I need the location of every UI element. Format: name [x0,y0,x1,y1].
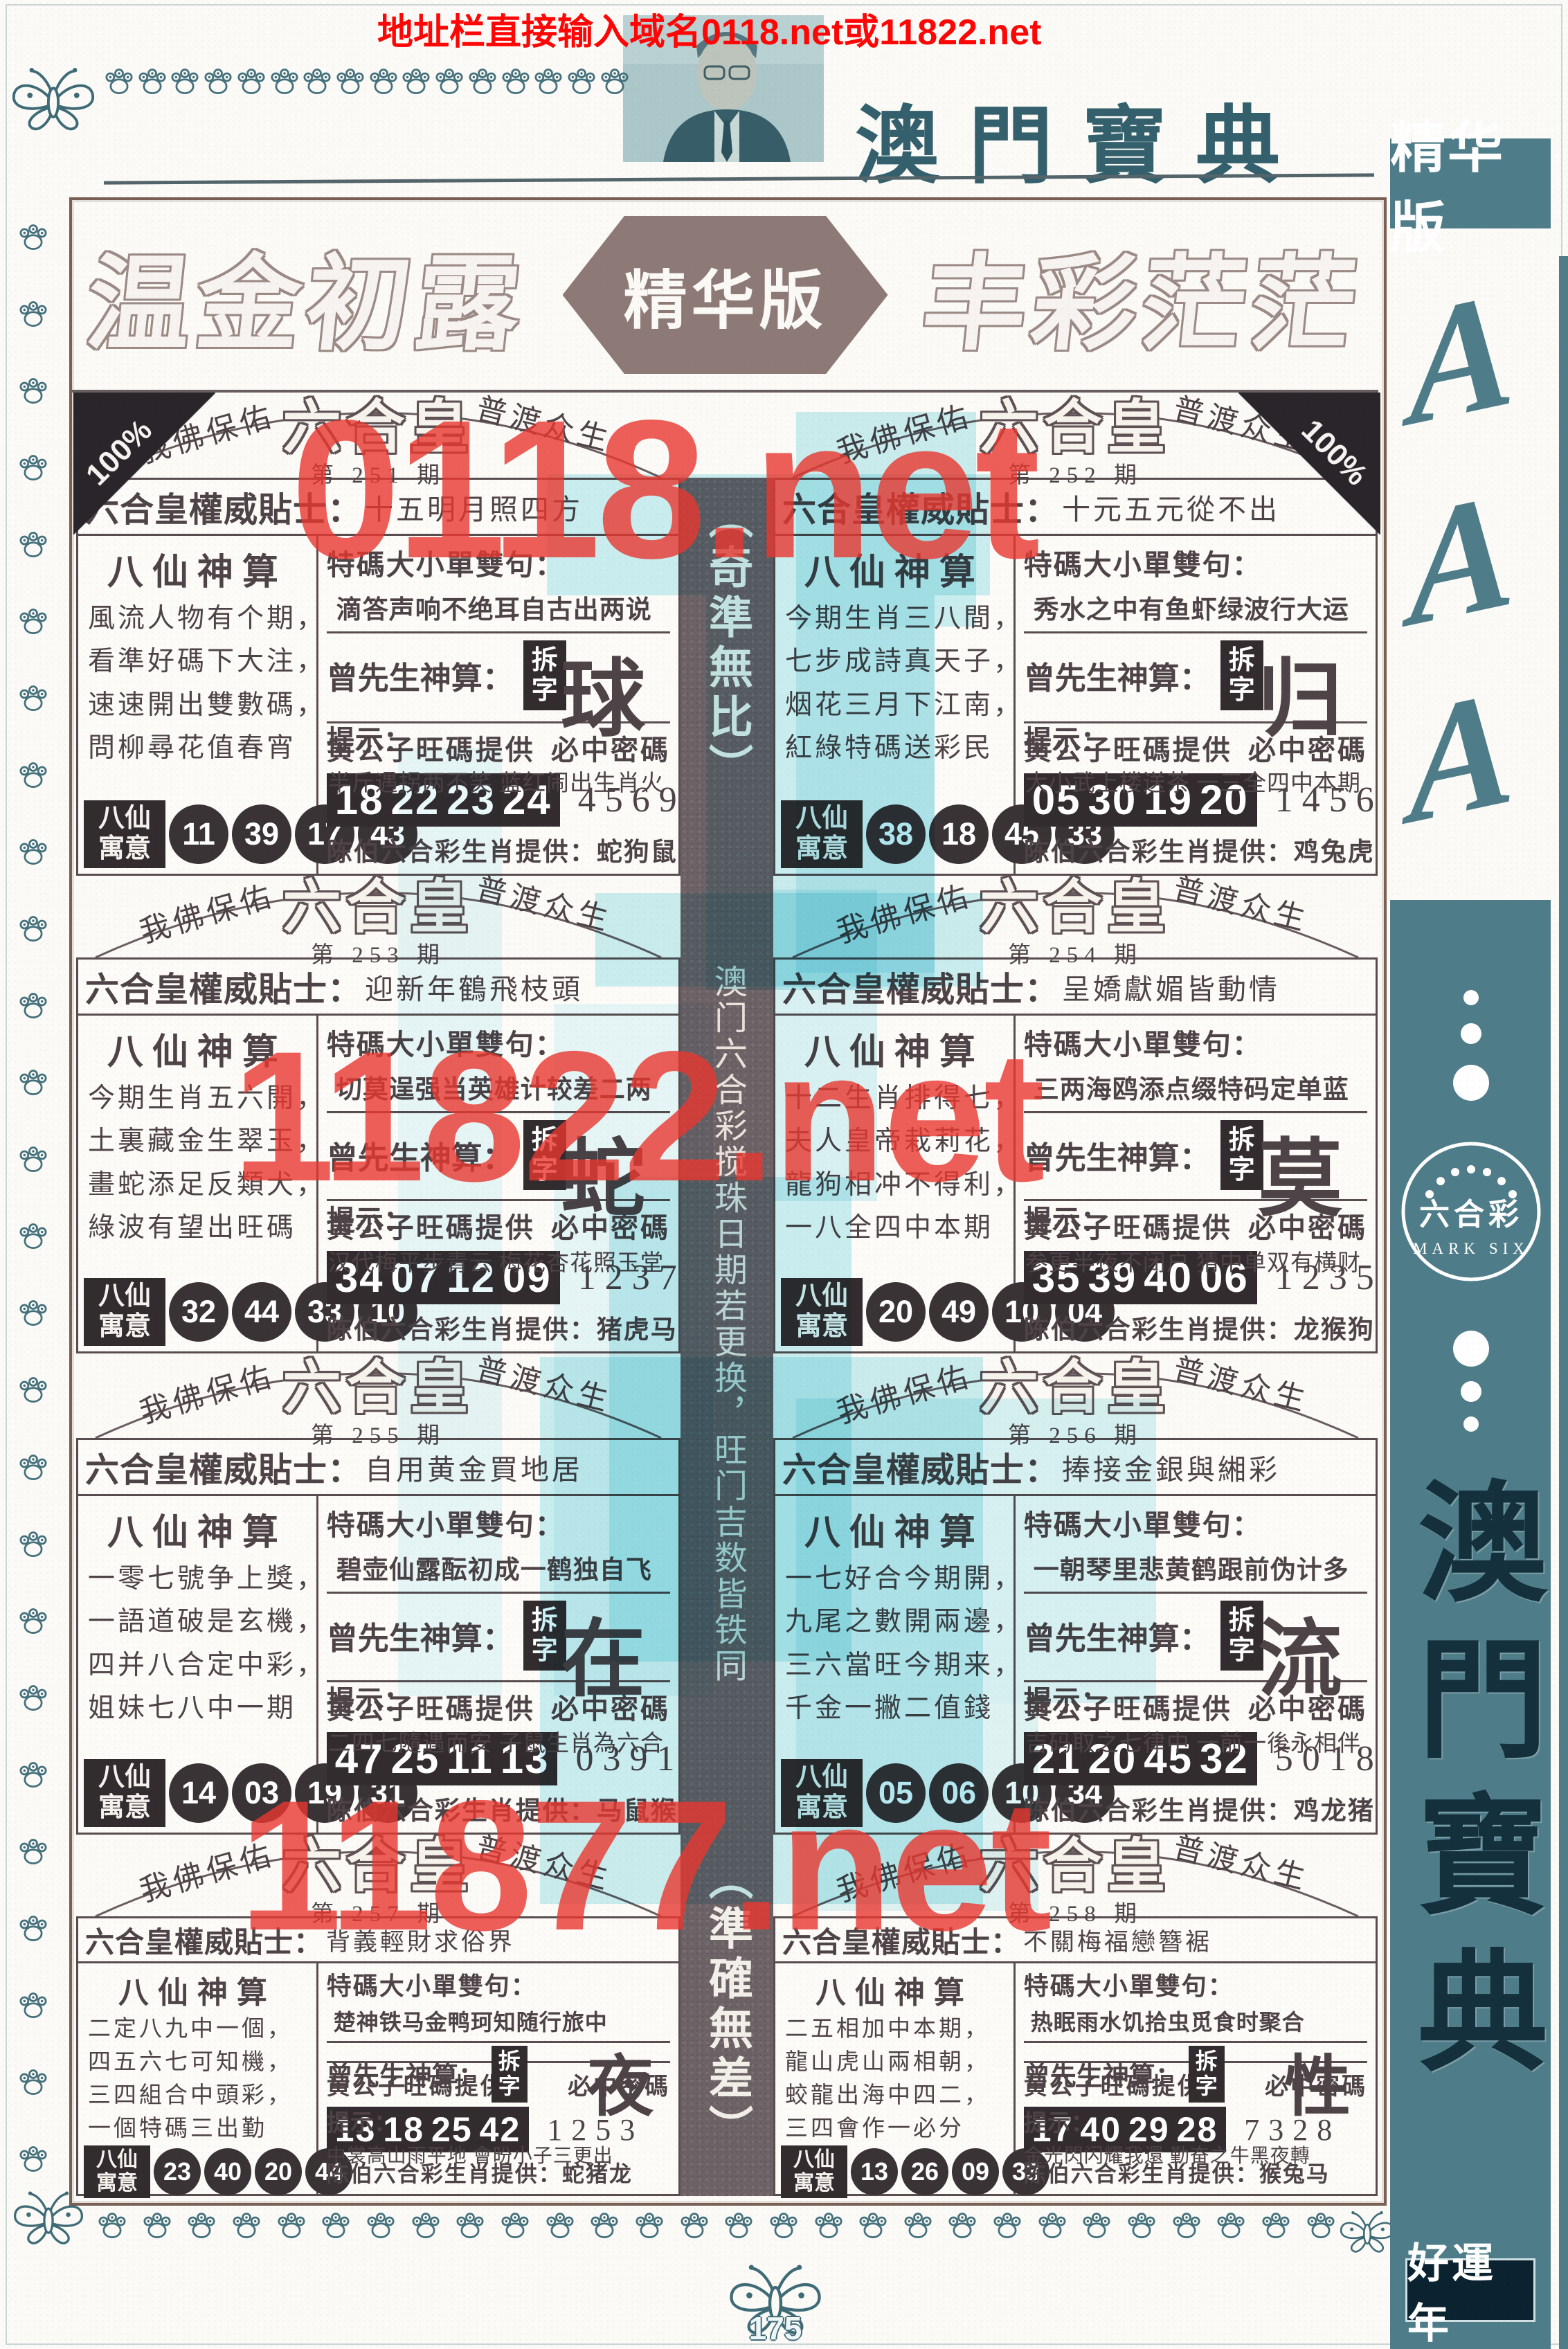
panel-logo: 六合皇 [282,1360,474,1418]
special-code-label: 特碼大小單雙句： [327,1502,670,1543]
issue-number: 第 253 期 [311,936,446,969]
zeng-label: 曾先生神算： [1024,2055,1182,2093]
special-code-label: 特碼大小單雙句： [1024,1021,1367,1063]
paw-print-icon [236,66,267,96]
zeng-label: 曾先生神算： [327,1613,514,1658]
page-title: 澳門寶典 [855,78,1309,200]
panel-logo: 六合皇 [282,399,474,458]
mark-six-cn: 六合彩 [1419,1198,1523,1232]
paw-print-icon [401,66,431,96]
special-code-text: 热眠雨水饥拾虫觅食时聚合 [1031,2005,1367,2037]
issue-value: 254 [1049,943,1102,968]
issue-value: 251 [352,463,405,488]
prediction-panel: 我佛保佑 普渡众生 六合皇 第 253 期 六合皇權威貼士： 迎新年鶴飛枝頭 八… [76,878,681,1353]
panel-table: 六合皇權威貼士： 自用黄金買地居 八仙神算 一零七號争上獎， 一語道破是玄機， … [76,1438,681,1835]
character-split-badge: 拆字 [523,1120,566,1190]
immortals-title: 八仙神算 [84,1023,311,1074]
immortals-meaning-label: 八仙寓意 [84,800,165,868]
mark-six-logo: 六合彩 MARK SIX [1398,1139,1544,1284]
paw-print-icon [18,452,48,483]
paw-print-icon [18,683,48,713]
hint-text: 参更半夜不闭户 猜中单双有横财 [1025,1244,1367,1277]
panel-table: 六合皇權威貼士： 十五明月照四方 八仙神算 風流人物有个期， 看準好碼下大注， … [76,478,681,876]
dot-ornament [1461,1023,1481,1044]
zodiac-values: 龙猴狗 [1294,1316,1375,1344]
special-code-label: 特碼大小單雙句： [327,1966,670,2002]
issue-value: 252 [1049,463,1102,488]
tip-text: 捧接金銀與緗彩 [1062,1446,1280,1488]
immortals-poem: 今期生肖五六開， 土裏藏金生翠玉， 畫蛇添足反類犬， 綠波有望出旺碼 [84,1077,311,1278]
split-character: 莫 [1258,1138,1342,1223]
paw-print-icon [903,2210,933,2240]
paw-print-icon [170,66,200,96]
special-code-section: 特碼大小單雙句： 楚神铁马金鸭珂知随行旅中 [327,1965,670,2043]
domain-banner-text: 地址栏直接输入域名0118.net或11822.net [377,3,1041,55]
paw-print-icon [18,836,48,867]
zodiac-row: 陈伯六合彩生肖提供：蛇狗鼠 [327,831,670,871]
issue-suffix: 期 [1114,1423,1143,1448]
zeng-section: 曾先生神算： 拆字 在 提示： 二四七隨遇而安 子鼠生肖為六合 [327,1594,670,1682]
paw-print-border-bottom [97,2210,1336,2240]
paw-print-icon [566,66,597,96]
immortals-title: 八仙神算 [84,1968,311,2012]
hint-text: 二四七隨遇而安 子鼠生肖為六合 [328,1725,670,1758]
meaning-number-ball: 05 [866,1763,926,1823]
issue-number: 第 251 期 [311,456,446,489]
immortals-column: 八仙神算 十二生肖排得七， 夫人皇帝栽莉花， 龍狗相冲不得利， 一八全四中本期 … [775,1016,1016,1351]
special-code-label: 特碼大小單雙句： [1024,1966,1367,2002]
immortals-poem: 一零七號争上獎， 一語道破是玄機， 四并八合定中彩， 姐妹七八中一期 [84,1558,311,1759]
mark-six-en: MARK SIX [1413,1240,1529,1257]
hundred-percent-badge: 100% [1238,393,1380,534]
special-code-label: 特碼大小單雙句： [1024,1502,1367,1543]
issue-number: 第 256 期 [1008,1416,1143,1450]
poem-line: 紅綠特碼送彩民 [785,727,1008,770]
split-character: 性 [1284,2054,1351,2121]
issue-prefix: 第 [1008,1902,1037,1927]
immortals-column: 八仙神算 今期生肖五六開， 土裏藏金生翠玉， 畫蛇添足反類犬， 綠波有望出旺碼 … [78,1016,318,1351]
panel-logo: 六合皇 [980,879,1171,937]
paw-print-icon [18,222,48,252]
paw-print-icon [276,2210,307,2240]
poem-line: 風流人物有个期， [88,597,311,640]
paw-print-icon [368,66,399,96]
zeng-label: 曾先生神算： [1024,1133,1211,1178]
details-column: 特碼大小單雙句： 一朝琴里悲黄鹤跟前伪计多 曾先生神算： 拆字 流 提示： 吉码… [1016,1496,1376,1833]
hint-text: 汉代梅平步青云 梅花杏花照玉堂 [328,1244,670,1277]
zeng-section: 曾先生神算： 拆字 流 提示： 吉码取之七律中 一前一後永相伴 [1024,1594,1367,1682]
zeng-label: 曾先生神算： [327,1133,514,1178]
zodiac-label: 陈伯六合彩生肖提供： [327,838,597,867]
banner-right-calligraphy: 丰彩茫茫 [917,220,1370,370]
split-character: 蛇 [561,1138,645,1223]
hundred-percent-badge: 100% [73,393,215,534]
issue-prefix: 第 [311,463,340,488]
poem-line: 速速開出雙數碼， [88,684,311,727]
tip-label: 六合皇權威貼士： [85,1919,323,1961]
paw-print-icon [679,2210,710,2240]
split-character: 夜 [587,2054,654,2121]
paw-print-icon [366,2210,396,2240]
paw-print-icon [858,2210,888,2240]
sidebar-edition-badge: 精华版 [1390,138,1551,228]
paw-print-icon [18,606,48,636]
zeng-section: 曾先生神算： 拆字 球 提示： 半斤遇拐两不笑 蓝红闹出生肖火 [327,633,670,723]
issue-suffix: 期 [1114,463,1143,488]
zodiac-label: 陈伯六合彩生肖提供： [327,1797,597,1826]
tip-label: 六合皇權威貼士： [85,1443,362,1492]
hundred-percent-label: 100% [80,413,159,493]
issue-value: 258 [1049,1902,1102,1927]
panel-arch-header: 我佛保佑 普渡众生 六合皇 第 257 期 [76,1837,681,1916]
issue-value: 255 [352,1423,405,1448]
poem-line: 龍狗相冲不得利， [785,1164,1008,1207]
meaning-number-ball: 44 [232,1282,291,1342]
paw-print-border-top [104,66,630,96]
zodiac-values: 猪虎马 [597,1316,678,1344]
paw-print-border-left [18,222,48,2174]
paw-print-icon [97,2210,127,2240]
paw-print-icon [1171,2210,1202,2240]
issue-value: 253 [352,943,405,968]
zodiac-label: 陈伯六合彩生肖提供： [1024,1797,1294,1826]
poem-line: 九尾之數開兩邊， [785,1601,1008,1644]
poem-line: 今期生肖五六開， [88,1077,311,1120]
immortals-meaning-row: 八仙寓意 23 40 20 44 [84,2145,311,2198]
split-character: 球 [561,658,645,743]
paw-print-icon [18,2067,48,2097]
immortals-meaning-row: 八仙寓意 11 39 17 43 [84,800,311,868]
tip-label: 六合皇權威貼士： [782,483,1059,532]
immortals-meaning-label: 八仙寓意 [781,1759,863,1827]
meaning-number-ball: 06 [929,1763,989,1823]
paw-print-icon [18,759,48,790]
hint-text: 半斤遇拐两不笑 蓝红闹出生肖火 [328,764,670,798]
issue-prefix: 第 [1008,943,1037,968]
poem-line: 一零七號争上獎， [88,1558,311,1601]
paw-print-icon [302,66,332,96]
poem-line: 問柳尋花值春宵 [88,727,311,770]
paw-print-icon [1126,2210,1157,2240]
character-split-badge: 拆字 [1189,2046,1225,2103]
poem-line: 三六當旺今期来， [785,1644,1008,1687]
scanned-lottery-tipsheet-page: 地址栏直接输入域名0118.net或11822.net 澳門寶典 175 温金初… [0,0,1568,2349]
paw-print-icon [18,1913,48,1943]
special-code-section: 特碼大小單雙句： 一朝琴里悲黄鹤跟前伪计多 [1024,1497,1367,1594]
paw-print-icon [18,298,48,329]
panel-table: 六合皇權威貼士： 背義輕財求俗界 八仙神算 二定八九中一個， 四五六七可知機， … [76,1916,681,2196]
immortals-column: 八仙神算 風流人物有个期， 看準好碼下大注， 速速開出雙數碼， 問柳尋花值春宵 … [78,536,318,874]
issue-suffix: 期 [417,1423,446,1448]
meaning-number-ball: 32 [169,1282,228,1342]
zodiac-label: 陈伯六合彩生肖提供： [1024,1316,1294,1344]
strip-body-text: 澳门六合彩搅珠日期若更换，旺门吉数皆铁同 [681,964,773,1684]
split-character: 在 [561,1619,645,1703]
panel-table: 六合皇權威貼士： 呈嬌獻媚皆動情 八仙神算 十二生肖排得七， 夫人皇帝栽莉花， … [773,957,1378,1353]
panel-arch-header: 我佛保佑 普渡众生 六合皇 第 252 期 100% [773,398,1378,478]
zeng-label: 曾先生神算： [1024,653,1211,698]
poem-line: 土裏藏金生翠玉， [88,1120,311,1163]
issue-value: 257 [352,1902,405,1927]
meaning-number-ball: 20 [255,2148,302,2195]
poem-line: 一個特碼三出勤 [88,2113,311,2146]
character-split-badge: 拆字 [1220,1601,1263,1671]
paw-print-icon [501,66,531,96]
immortals-title: 八仙神算 [781,1503,1008,1555]
immortals-column: 八仙神算 二定八九中一個， 四五六七可知機， 三四組合中頭彩， 一個特碼三出勤 … [78,1963,318,2194]
details-column: 特碼大小單雙句： 楚神铁马金鸭珂知随行旅中 曾先生神算： 拆字 夜 提示： 中裳… [318,1963,678,2194]
poem-line: 看準好碼下大注， [88,640,311,683]
special-code-label: 特碼大小單雙句： [327,1021,670,1063]
poem-line: 三四會作一必分 [785,2113,1008,2146]
immortals-title: 八仙神算 [781,1023,1008,1074]
issue-prefix: 第 [1008,463,1037,488]
paw-print-icon [335,66,366,96]
tip-text: 自用黄金買地居 [365,1446,583,1488]
zodiac-row: 陈伯六合彩生肖提供：马鼠猴 [327,1790,670,1830]
panel-arch-header: 我佛保佑 普渡众生 六合皇 第 255 期 [76,1358,681,1438]
issue-suffix: 期 [417,943,446,968]
center-vertical-strip: （奇準無比） 澳门六合彩搅珠日期若更换，旺门吉数皆铁同 （準確無差） [681,478,773,2196]
paw-print-icon [18,1144,48,1174]
prediction-panel: 我佛保佑 普渡众生 六合皇 第 255 期 六合皇權威貼士： 自用黄金買地居 八… [76,1358,681,1835]
special-code-section: 特碼大小單雙句： 碧壶仙露酝初成一鹤独自飞 [327,1497,670,1594]
paw-print-icon [104,66,134,96]
zodiac-values: 鸡兔虎 [1294,838,1375,867]
poem-line: 四并八合定中彩， [88,1644,311,1687]
immortals-title: 八仙神算 [781,543,1008,595]
dot-ornament [1463,990,1479,1005]
issue-prefix: 第 [311,1902,340,1927]
special-code-text: 碧壶仙露酝初成一鹤独自飞 [336,1549,670,1586]
issue-number: 第 258 期 [1008,1895,1143,1928]
details-column: 特碼大小單雙句： 切莫逞强当英雄计较差二两 曾先生神算： 拆字 蛇 提示： 汉代… [318,1016,678,1351]
panel-table: 六合皇權威貼士： 不關梅福戀簪裾 八仙神算 二五相加中本期， 龍山虎山兩相朝， … [773,1916,1378,2196]
immortals-meaning-row: 八仙寓意 13 26 09 33 [781,2145,1008,2198]
panel-arch-header: 我佛保佑 普渡众生 六合皇 第 254 期 [773,878,1378,957]
zodiac-values: 蛇狗鼠 [597,838,678,867]
prediction-panel: 我佛保佑 普渡众生 六合皇 第 251 期 100% 六合皇權威貼士： 十五明月… [76,398,681,876]
paw-print-icon [18,1529,48,1559]
special-code-text: 秀水之中有鱼虾绿波行大运 [1034,588,1367,626]
panel-table: 六合皇權威貼士： 捧接金銀與緗彩 八仙神算 一七好合今期開， 九尾之數開兩邊， … [773,1438,1378,1835]
tip-label: 六合皇權威貼士： [782,962,1059,1011]
immortals-title: 八仙神算 [781,1968,1008,2012]
tip-text: 迎新年鶴飛枝頭 [365,966,583,1007]
immortals-column: 八仙神算 二五相加中本期， 龍山虎山兩相朝， 蛟龍出海中四二， 三四會作一必分 … [775,1963,1016,2194]
paw-print-icon [723,2210,754,2240]
immortals-column: 八仙神算 今期生肖三八間， 七步成詩真天子， 烟花三月下江南， 紅綠特碼送彩民 … [775,536,1016,874]
issue-number: 第 254 期 [1008,936,1143,969]
sidebar-vertical-title: 澳門寶典 [1390,1475,1551,2100]
immortals-meaning-label: 八仙寓意 [84,2145,150,2198]
strip-bottom-slogan: （準確無差） [695,1855,759,2154]
meaning-number-ball: 13 [851,2148,898,2195]
poem-line: 一八全四中本期 [785,1207,1008,1250]
panel-arch-header: 我佛保佑 普渡众生 六合皇 第 258 期 [773,1837,1378,1916]
immortals-poem: 一七好合今期開， 九尾之數開兩邊， 三六當旺今期来， 千金一撇二值錢 [781,1558,1008,1759]
paw-print-icon [18,529,48,559]
dot-ornament [1453,1065,1489,1101]
immortals-meaning-label: 八仙寓意 [84,1278,165,1346]
immortals-title: 八仙神算 [84,543,311,595]
poem-line: 二五相加中本期， [785,2013,1008,2046]
zeng-label: 曾先生神算： [1024,1613,1211,1658]
immortals-meaning-label: 八仙寓意 [781,1278,863,1346]
butterfly-icon [1337,2203,1397,2257]
paw-print-icon [18,1067,48,1097]
hint-text: 金光閃闪耀我還 勤奋之牛黑夜轉 [1024,2141,1367,2168]
poem-line: 一語道破是玄機， [88,1601,311,1644]
poem-line: 四五六七可知機， [88,2046,311,2080]
issue-prefix: 第 [311,943,340,968]
issue-number: 第 252 期 [1008,456,1143,489]
panel-logo: 六合皇 [282,879,474,937]
paw-print-icon [18,375,48,406]
poem-line: 千金一撇二值錢 [785,1687,1008,1730]
poem-line: 綠波有望出旺碼 [88,1207,311,1250]
panel-table: 六合皇權威貼士： 迎新年鶴飛枝頭 八仙神算 今期生肖五六開， 土裏藏金生翠玉， … [76,957,681,1353]
meaning-number-ball: 39 [232,804,291,864]
issue-suffix: 期 [417,1902,446,1927]
zodiac-label: 陈伯六合彩生肖提供： [1024,838,1294,867]
paw-print-icon [533,66,564,96]
paw-print-icon [768,2210,799,2240]
character-split-badge: 拆字 [1220,640,1263,710]
paw-print-icon [142,2210,172,2240]
immortals-poem: 二五相加中本期， 龍山虎山兩相朝， 蛟龍出海中四二， 三四會作一必分 [781,2013,1008,2145]
butterfly-icon [10,2181,87,2250]
paw-print-icon [18,1297,48,1328]
hint-text: 大小武上楼送茶 一三全四中本期 [1025,764,1367,798]
paw-print-icon [231,2210,262,2240]
poem-line: 龍山虎山兩相朝， [785,2046,1008,2080]
paw-print-icon [18,913,48,944]
zeng-section: 曾先生神算： 拆字 归 提示： 大小武上楼送茶 一三全四中本期 [1024,633,1367,723]
immortals-meaning-row: 八仙寓意 14 03 19 31 [84,1759,311,1827]
panel-arch-header: 我佛保佑 普渡众生 六合皇 第 256 期 [773,1358,1378,1438]
tip-text: 十五明月照四方 [365,486,583,528]
strip-top-slogan: （奇準無比） [695,494,759,793]
meaning-number-ball: 03 [232,1763,291,1823]
details-column: 特碼大小單雙句： 秀水之中有鱼虾绿波行大运 曾先生神算： 拆字 归 提示： 大小… [1016,536,1376,874]
paw-print-icon [411,2210,441,2240]
panel-logo: 六合皇 [282,1838,474,1896]
paw-print-icon [947,2210,977,2240]
paw-print-icon [545,2210,575,2240]
paw-print-icon [600,66,630,96]
details-column: 特碼大小單雙句： 三两海鸥添点缀特码定单蓝 曾先生神算： 拆字 莫 提示： 参更… [1016,1016,1376,1351]
zeng-section: 曾先生神算： 拆字 夜 提示： 中裳高山雨平地 會昐小子三更出 [327,2043,670,2063]
tip-label: 六合皇權威貼士： [782,1443,1059,1492]
paw-print-icon [1261,2210,1291,2240]
meaning-number-ball: 26 [901,2148,948,2195]
zodiac-values: 马鼠猴 [597,1797,678,1826]
panel-logo: 六合皇 [980,1360,1171,1418]
zodiac-label: 陈伯六合彩生肖提供： [327,1316,597,1344]
meaning-number-ball: 14 [169,1763,228,1823]
immortals-meaning-row: 八仙寓意 38 18 45 33 [781,800,1008,868]
special-code-section: 特碼大小單雙句： 滴答声响不绝耳自古出两说 [327,537,670,633]
paw-print-icon [203,66,233,96]
paw-print-icon [18,1759,48,1790]
meaning-number-ball: 09 [952,2148,999,2195]
dot-ornament [1461,1381,1481,1402]
immortals-meaning-row: 八仙寓意 32 44 33 10 [84,1278,311,1346]
poem-line: 七步成詩真天子， [785,640,1008,683]
banner-left-calligraphy: 温金初露 [81,220,534,370]
details-column: 特碼大小單雙句： 滴答声响不绝耳自古出两说 曾先生神算： 拆字 球 提示： 半斤… [318,536,678,874]
immortals-poem: 十二生肖排得七， 夫人皇帝栽莉花， 龍狗相冲不得利， 一八全四中本期 [781,1077,1008,1278]
paw-print-icon [1216,2210,1246,2240]
issue-suffix: 期 [417,463,446,488]
issue-prefix: 第 [311,1423,340,1448]
poem-line: 夫人皇帝栽莉花， [785,1120,1008,1163]
meaning-number-ball: 11 [169,804,228,864]
issue-suffix: 期 [1114,943,1143,968]
tip-label: 六合皇權威貼士： [85,962,362,1011]
immortals-column: 八仙神算 一零七號争上獎， 一語道破是玄機， 四并八合定中彩， 姐妹七八中一期 … [78,1496,318,1833]
zeng-section: 曾先生神算： 拆字 性 提示： 金光閃闪耀我還 勤奋之牛黑夜轉 [1024,2043,1367,2063]
zeng-section: 曾先生神算： 拆字 莫 提示： 参更半夜不闭户 猜中单双有横财 [1024,1113,1367,1201]
meaning-number-ball: 23 [154,2148,201,2195]
paw-print-icon [1081,2210,1112,2240]
prediction-panel: 我佛保佑 普渡众生 六合皇 第 256 期 六合皇權威貼士： 捧接金銀與緗彩 八… [773,1358,1378,1835]
paw-print-icon [455,2210,485,2240]
paw-print-icon [1306,2210,1336,2240]
prediction-panel: 我佛保佑 普渡众生 六合皇 第 258 期 六合皇權威貼士： 不關梅福戀簪裾 八… [773,1837,1378,2196]
zodiac-row: 陈伯六合彩生肖提供：鸡龙猪 [1024,1790,1367,1830]
immortals-meaning-row: 八仙寓意 05 06 10 34 [781,1759,1008,1827]
split-character: 流 [1258,1619,1342,1703]
sidebar-letter-a: A [1400,466,1518,652]
meaning-number-ball: 20 [866,1282,926,1342]
panel-logo: 六合皇 [980,1838,1171,1896]
right-edge-bar [1559,256,1568,2349]
page-number: 175 [717,2310,834,2347]
prediction-panel: 我佛保佑 普渡众生 六合皇 第 257 期 六合皇權威貼士： 背義輕財求俗界 八… [76,1837,681,2196]
paw-print-icon [18,1452,48,1482]
zeng-label: 曾先生神算： [327,653,514,698]
details-column: 特碼大小單雙句： 碧壶仙露酝初成一鹤独自飞 曾先生神算： 拆字 在 提示： 二四… [318,1496,678,1833]
paw-print-icon [18,2143,48,2174]
paw-print-icon [18,1990,48,2020]
special-code-section: 特碼大小單雙句： 热眠雨水饥拾虫觅食时聚合 [1024,1965,1367,2043]
meaning-number-ball: 40 [204,2148,251,2195]
poem-line: 姐妹七八中一期 [88,1687,311,1730]
character-split-badge: 拆字 [523,640,566,710]
immortals-meaning-label: 八仙寓意 [781,800,863,868]
panel-arch-header: 我佛保佑 普渡众生 六合皇 第 253 期 [76,878,681,957]
butterfly-icon [8,55,98,137]
issue-prefix: 第 [1008,1423,1037,1448]
issue-number: 第 257 期 [311,1895,446,1928]
character-split-badge: 拆字 [1220,1120,1263,1190]
sidebar-letter-a: A [1400,663,1518,849]
special-code-section: 特碼大小單雙句： 三两海鸥添点缀特码定单蓝 [1024,1017,1367,1113]
zodiac-values: 鸡龙猪 [1294,1797,1375,1826]
zodiac-row: 陈伯六合彩生肖提供：鸡兔虎 [1024,831,1367,871]
issue-value: 256 [1049,1423,1102,1448]
immortals-meaning-row: 八仙寓意 20 49 10 04 [781,1278,1008,1346]
dot-ornament [1453,1331,1489,1367]
tip-label: 六合皇權威貼士： [782,1919,1020,1961]
paw-print-icon [434,66,465,96]
paw-print-icon [634,2210,665,2240]
poem-line: 十二生肖排得七， [785,1077,1008,1120]
character-split-badge: 拆字 [492,2046,528,2103]
special-code-text: 一朝琴里悲黄鹤跟前伪计多 [1034,1549,1367,1586]
